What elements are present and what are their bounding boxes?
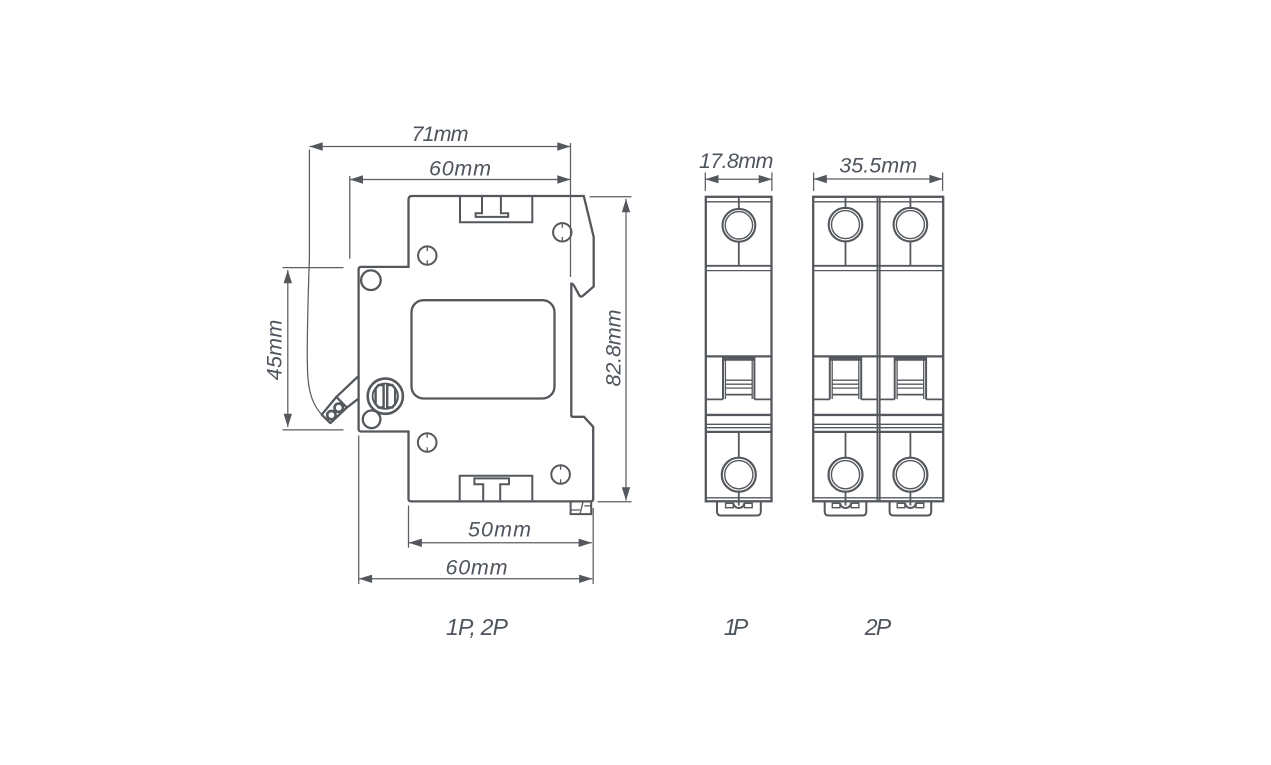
- svg-text:60mm: 60mm: [429, 157, 491, 181]
- svg-text:82.8mm: 82.8mm: [602, 310, 626, 387]
- svg-text:50mm: 50mm: [468, 517, 531, 541]
- svg-text:2P: 2P: [864, 614, 892, 640]
- svg-text:17.8mm: 17.8mm: [699, 149, 774, 173]
- svg-text:45mm: 45mm: [263, 320, 287, 381]
- svg-text:1P: 1P: [724, 614, 749, 640]
- svg-text:60mm: 60mm: [446, 556, 508, 580]
- svg-text:1P, 2P: 1P, 2P: [446, 614, 509, 640]
- svg-text:71mm: 71mm: [412, 122, 469, 146]
- svg-text:35.5mm: 35.5mm: [839, 154, 917, 178]
